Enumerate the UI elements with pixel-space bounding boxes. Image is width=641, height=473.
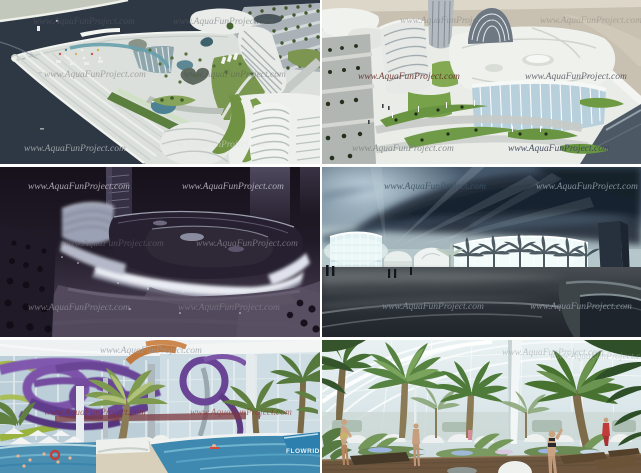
svg-text:FLOWRID: FLOWRID <box>286 448 320 455</box>
